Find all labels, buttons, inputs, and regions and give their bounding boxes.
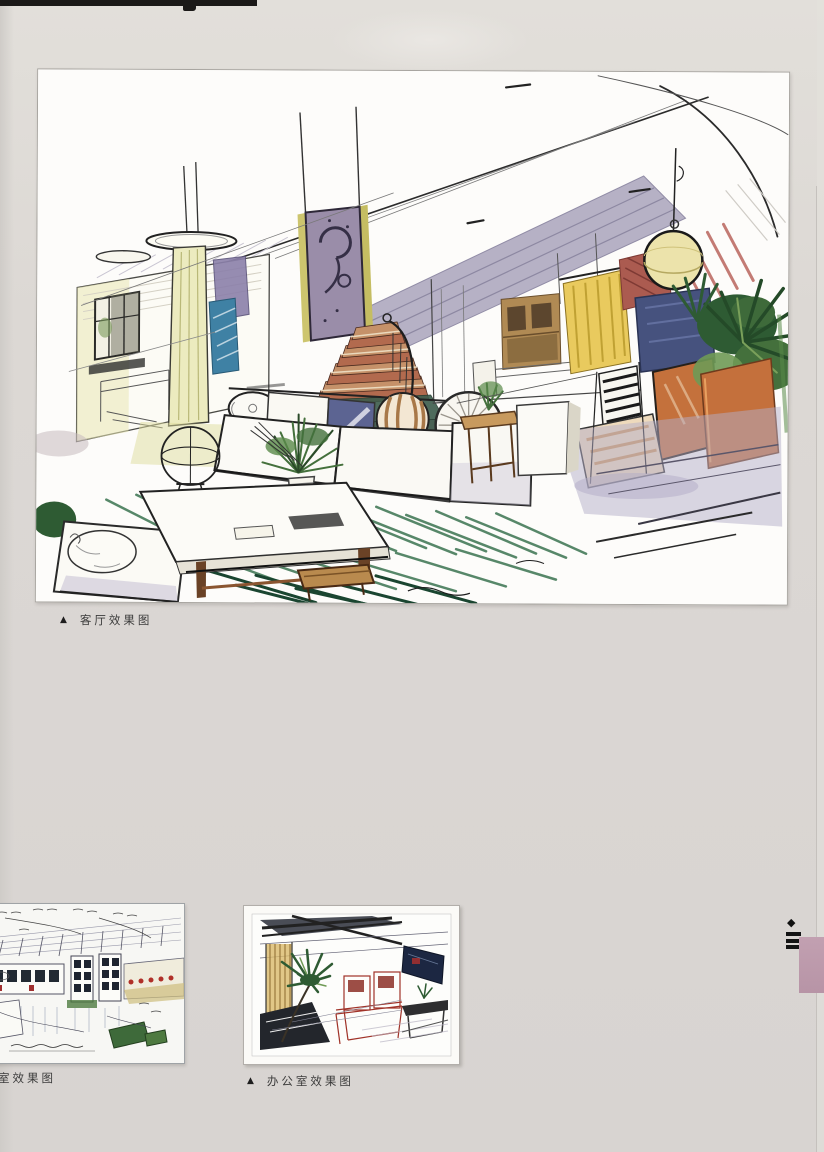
meeting-room-sketch — [0, 904, 184, 1063]
caption-text: 室效果图 — [0, 1073, 56, 1085]
red-chair-seat — [378, 976, 394, 988]
caption-text: 办公室效果图 — [267, 1076, 354, 1088]
living-room-figure — [35, 68, 790, 605]
caption-meeting-room: 室效果图 — [0, 1073, 56, 1085]
meeting-room-figure — [0, 903, 185, 1064]
diamond-icon: ◆ — [787, 917, 795, 928]
pink-edge-tab — [799, 937, 824, 993]
page-edge-line — [816, 186, 817, 1152]
caption-living-room: ▲ 客厅效果图 — [60, 615, 152, 627]
scanned-book-page: ▲ 客厅效果图 — [0, 0, 824, 1152]
bar — [786, 932, 801, 936]
triangle-marker-icon: ▲ — [247, 1077, 254, 1086]
caption-text: 客厅效果图 — [80, 615, 153, 627]
scan-artifact-strip — [0, 0, 257, 6]
caption-office: ▲ 办公室效果图 — [247, 1076, 354, 1088]
living-room-sketch — [36, 69, 789, 604]
red-chair-seat — [348, 980, 364, 992]
office-sketch — [244, 906, 459, 1064]
triangle-marker-icon: ▲ — [60, 616, 67, 625]
office-figure — [243, 905, 460, 1065]
scan-artifact-nub — [183, 0, 196, 11]
